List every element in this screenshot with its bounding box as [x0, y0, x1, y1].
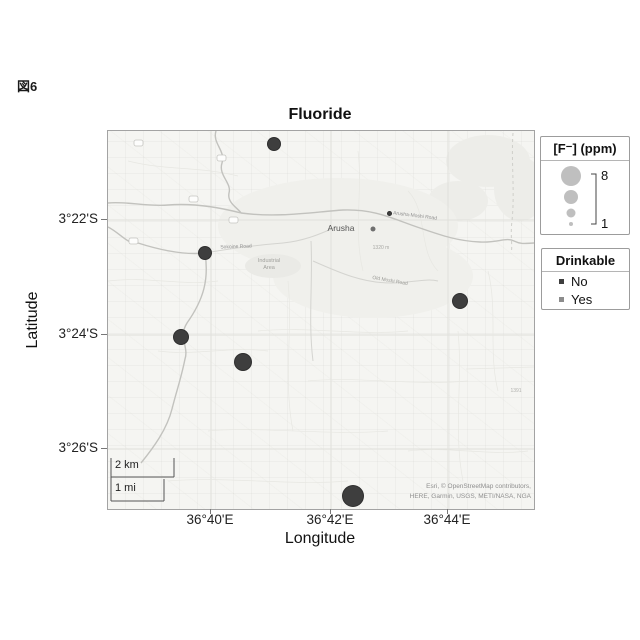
drinkable-yes-label: Yes [571, 292, 592, 307]
y-axis-label: Latitude [24, 260, 44, 380]
scalebar-km-label: 2 km [115, 459, 139, 471]
y-tick-mark [101, 219, 107, 220]
drinkable-legend: Drinkable No Yes [541, 248, 630, 310]
basemap-text-label: Arusha [328, 223, 355, 233]
size-legend-min: 1 [601, 216, 608, 231]
city-marker-dot [371, 227, 376, 232]
drinkable-legend-title: Drinkable [542, 249, 629, 272]
size-legend-title: [F⁻] (ppm) [541, 137, 629, 161]
basemap [108, 131, 534, 509]
attribution-line-2: HERE, Garmin, USGS, METI/NASA, NGA [410, 492, 531, 503]
attribution-line-1: Esri, © OpenStreetMap contributors, [410, 482, 531, 493]
drinkable-legend-item-no: No [542, 273, 629, 290]
map-plot-area: ArushaArusha-Moshi RoadSokoine RoadIndus… [107, 130, 535, 510]
fluoride-bubble[interactable] [173, 329, 189, 345]
x-tick-mark [447, 509, 448, 514]
drinkable-legend-item-yes: Yes [542, 291, 629, 308]
fluoride-bubble[interactable] [234, 353, 252, 371]
terrain-shading [218, 135, 534, 318]
fluoride-bubble[interactable] [267, 137, 281, 151]
drinkable-no-label: No [571, 274, 588, 289]
x-tick-label: 36°40'E [165, 512, 255, 527]
fluoride-bubble[interactable] [452, 293, 468, 309]
scalebar-mi-label: 1 mi [115, 482, 136, 494]
size-legend-circles [561, 166, 581, 226]
fluoride-size-legend: [F⁻] (ppm) 8 1 [540, 136, 630, 235]
y-tick-mark [101, 448, 107, 449]
drinkable-no-swatch-icon [559, 279, 564, 284]
y-tick-label: 3°24'S [26, 326, 98, 341]
x-tick-mark [330, 509, 331, 514]
x-tick-label: 36°42'E [285, 512, 375, 527]
basemap-text-label: Industrial [258, 258, 280, 264]
size-legend-glyphs: 8 1 [541, 161, 629, 231]
fluoride-bubble[interactable] [342, 485, 364, 507]
y-tick-label: 3°26'S [26, 440, 98, 455]
chart-title: Fluoride [107, 106, 533, 124]
figure-number-label: 図6 [17, 76, 37, 95]
x-tick-mark [210, 509, 211, 514]
basemap-text-label: Sokoine Road [220, 243, 252, 250]
basemap-text-label: Area [263, 265, 275, 271]
basemap-text-label: 1391 [510, 388, 521, 394]
fluoride-bubble[interactable] [387, 211, 392, 216]
y-tick-mark [101, 334, 107, 335]
y-tick-label: 3°22'S [26, 211, 98, 226]
map-attribution: Esri, © OpenStreetMap contributors, HERE… [410, 482, 531, 503]
x-axis-label: Longitude [260, 530, 380, 548]
size-legend-bracket [591, 174, 596, 224]
fluoride-bubble[interactable] [198, 246, 212, 260]
drinkable-yes-swatch-icon [559, 297, 564, 302]
basemap-text-label: 1320 m [373, 245, 390, 251]
x-tick-label: 36°44'E [402, 512, 492, 527]
size-legend-max: 8 [601, 168, 608, 183]
